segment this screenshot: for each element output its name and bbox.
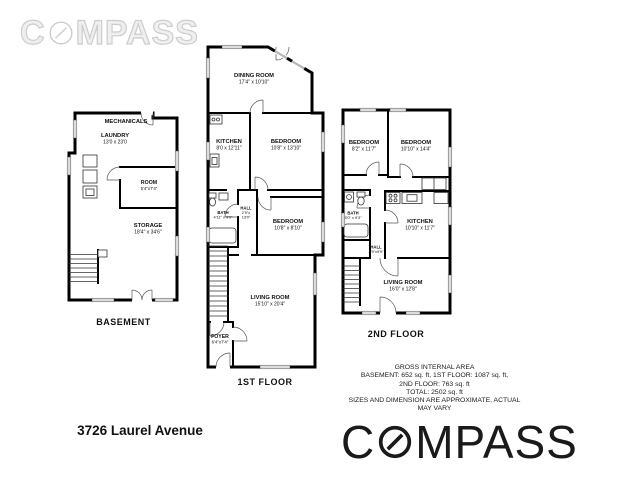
- room-dims-label: 10'10" x 14'4": [401, 147, 431, 153]
- basement-windows: [67, 120, 179, 302]
- basement-plan-label: BASEMENT: [61, 317, 186, 327]
- first-floor-stairs: [208, 246, 228, 316]
- first-floor-floorplan: DINING ROOM 17'4" x 10'10" KITCHEN 8'0 x…: [198, 42, 333, 377]
- room-dims-label: 5'4"x7'4": [141, 186, 158, 191]
- area-summary-disclaimer: SIZES AND DIMENSION ARE APPROXIMATE, ACT…: [347, 397, 522, 414]
- compass-o-icon: [377, 425, 413, 459]
- watermark-logo-suffix: MPASS: [76, 16, 199, 50]
- room-dims-label: 13'0": [242, 215, 251, 220]
- second-floor-stairs: [343, 266, 360, 302]
- first-floor-plan-label: 1ST FLOOR: [198, 377, 332, 387]
- gross-internal-area-summary: GROSS INTERNAL AREA BASEMENT: 652 sq. ft…: [347, 364, 522, 414]
- room-name-label: KITCHEN: [407, 219, 433, 225]
- compass-o-icon: [48, 20, 74, 46]
- second-floor-plan-label: 2ND FLOOR: [338, 329, 454, 339]
- area-summary-line3: TOTAL: 2502 sq. ft: [347, 389, 522, 397]
- watermark-logo-prefix: C: [20, 16, 46, 50]
- room-name-label: BEDROOM: [401, 140, 431, 146]
- first-floor-fixtures: [209, 115, 236, 243]
- room-name-label: STORAGE: [134, 223, 163, 229]
- floorplan-page: C MPASS: [0, 0, 621, 480]
- room-name-label: LAUNDRY: [101, 133, 129, 139]
- second-floor-floorplan: BEDROOM 8'2" x 11'7" BEDROOM 10'10" x 14…: [338, 95, 473, 325]
- room-name-label: BEDROOM: [271, 139, 301, 145]
- compass-logo-prefix: C: [341, 419, 375, 465]
- area-summary-line2: 2ND FLOOR: 763 sq. ft: [347, 381, 522, 389]
- area-summary-title: GROSS INTERNAL AREA: [347, 364, 522, 372]
- room-name-label: LIVING ROOM: [251, 295, 290, 301]
- first-floor-windows: [206, 45, 325, 369]
- first-floor-walls: [208, 47, 323, 367]
- room-dims-label: 17'4" x 10'10": [239, 80, 269, 86]
- room-dims-label: 15'10" x 20'4": [255, 302, 285, 308]
- room-name-label: BEDROOM: [349, 140, 379, 146]
- room-name-label: MECHANICALS: [105, 119, 148, 125]
- property-address: 3726 Laurel Avenue: [55, 423, 225, 438]
- room-dims-label: 8'2" x 11'7": [352, 147, 376, 153]
- room-dims-label: 8'0 x 12'11": [216, 146, 242, 152]
- room-dims-label: 10'10" x 11'7": [405, 226, 435, 232]
- room-dims-label: 16'0" x 12'8": [389, 287, 417, 293]
- room-dims-label: 13'0 x 23'0: [103, 140, 127, 146]
- basement-floorplan: MECHANICALS LAUNDRY 13'0 x 23'0 ROOM 5'4…: [63, 100, 188, 315]
- room-dims-label: 4'11" x 9'9": [214, 215, 234, 220]
- basement-fixtures: [83, 155, 97, 198]
- room-name-label: KITCHEN: [216, 139, 242, 145]
- basement-stairs: [69, 250, 107, 282]
- room-dims-label: 6'4"x7'4": [212, 340, 229, 345]
- room-dims-label: 18'4" x 34'6": [134, 230, 162, 236]
- watermark-logo: C MPASS: [20, 16, 199, 50]
- room-name-label: LIVING ROOM: [384, 280, 423, 286]
- room-name-label: DINING ROOM: [234, 73, 274, 79]
- area-summary-line1: BASEMENT: 652 sq. ft, 1ST FLOOR: 1087 sq…: [347, 372, 522, 380]
- room-dims-label: 5'0" x 9'3": [344, 215, 362, 220]
- room-name-label: BEDROOM: [273, 219, 303, 225]
- compass-logo-suffix: MPASS: [415, 419, 578, 465]
- compass-logo: C MPASS: [341, 419, 578, 465]
- room-dims-label: 10'8" x 8'10": [274, 226, 302, 232]
- room-dims-label: 4'9"x9'9": [369, 249, 384, 254]
- room-dims-label: 10'8" x 13'10": [271, 146, 301, 152]
